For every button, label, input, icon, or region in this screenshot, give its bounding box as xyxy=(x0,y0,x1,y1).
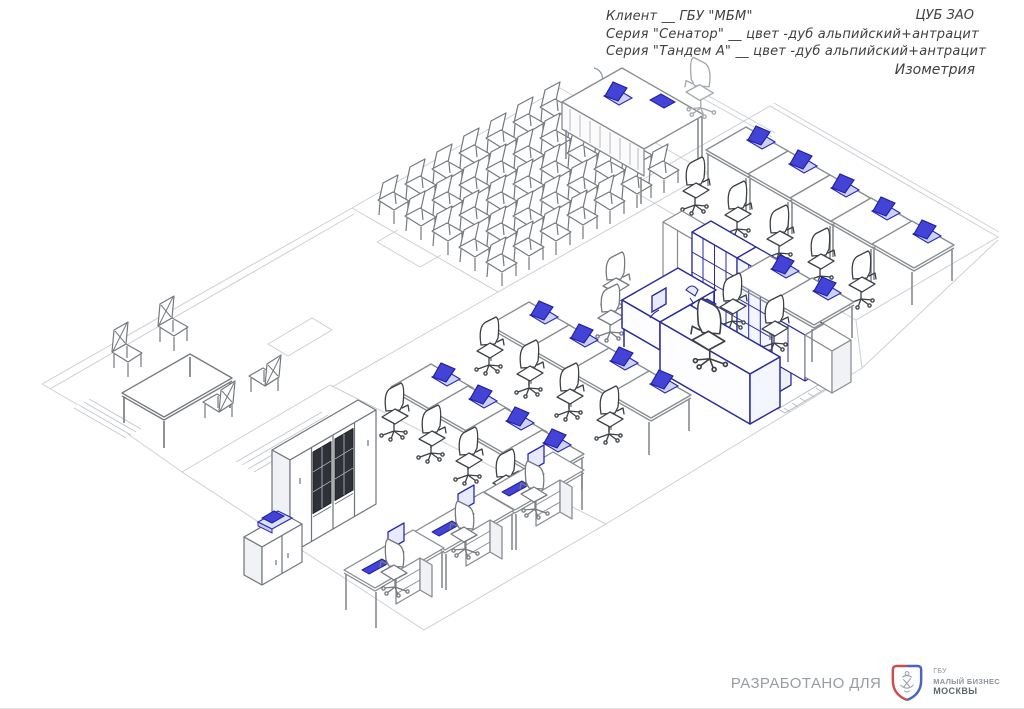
footer: РАЗРАБОТАНО ДЛЯ ГБУ МАЛЫЙ БИЗНЕС МОСКВЫ xyxy=(731,664,1000,702)
stack-chair-icon xyxy=(405,191,436,240)
stack-chair-icon xyxy=(486,237,517,286)
view-label: Изометрия xyxy=(895,62,975,78)
logo-org-city: МОСКВЫ xyxy=(933,686,1000,697)
stack-chair-icon xyxy=(513,221,544,270)
moscow-shield-icon xyxy=(890,664,924,702)
reception-desk-cluster xyxy=(344,445,584,628)
stack-chair-icon xyxy=(648,144,679,193)
stack-chair-icon xyxy=(432,206,463,255)
project-code: ЦУБ ЗАО xyxy=(915,8,974,23)
developed-for-label: РАЗРАБОТАНО ДЛЯ xyxy=(731,675,881,692)
stack-chair-icon xyxy=(459,222,490,271)
series-line-1: Серия "Сенатор" __ цвет -дуб альпийский+… xyxy=(606,26,986,44)
stack-chair-icon xyxy=(567,190,598,239)
dining-area xyxy=(112,296,281,448)
printer-cabinet xyxy=(244,511,302,585)
dining-chair-icon xyxy=(158,296,188,351)
dining-chair-icon xyxy=(249,355,281,392)
stack-chair-icon xyxy=(378,175,409,224)
logo-org-abbr: ГБУ xyxy=(933,668,1000,677)
isometric-office-drawing xyxy=(0,0,1024,708)
drawing-sheet: Клиент __ ГБУ "МБМ" Серия "Сенатор" __ ц… xyxy=(0,0,1024,709)
series-line-2: Серия "Тандем А" __ цвет -дуб альпийский… xyxy=(606,43,986,61)
presenter-chair-icon xyxy=(685,57,716,118)
stack-chair-icon xyxy=(540,206,571,255)
stack-chair-icon xyxy=(594,175,625,224)
visitor-chair-icon xyxy=(596,284,625,342)
logo-text: ГБУ МАЛЫЙ БИЗНЕС МОСКВЫ xyxy=(933,668,1000,697)
logo-org-name: МАЛЫЙ БИЗНЕС xyxy=(933,677,1000,686)
